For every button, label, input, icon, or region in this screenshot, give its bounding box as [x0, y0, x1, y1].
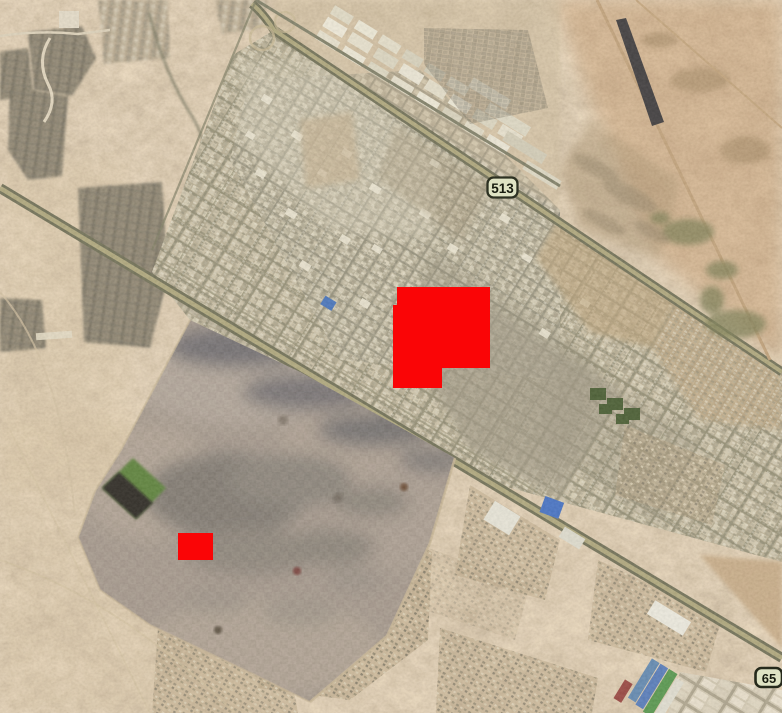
svg-text:65: 65 [762, 671, 776, 686]
svg-text:513: 513 [491, 181, 514, 196]
